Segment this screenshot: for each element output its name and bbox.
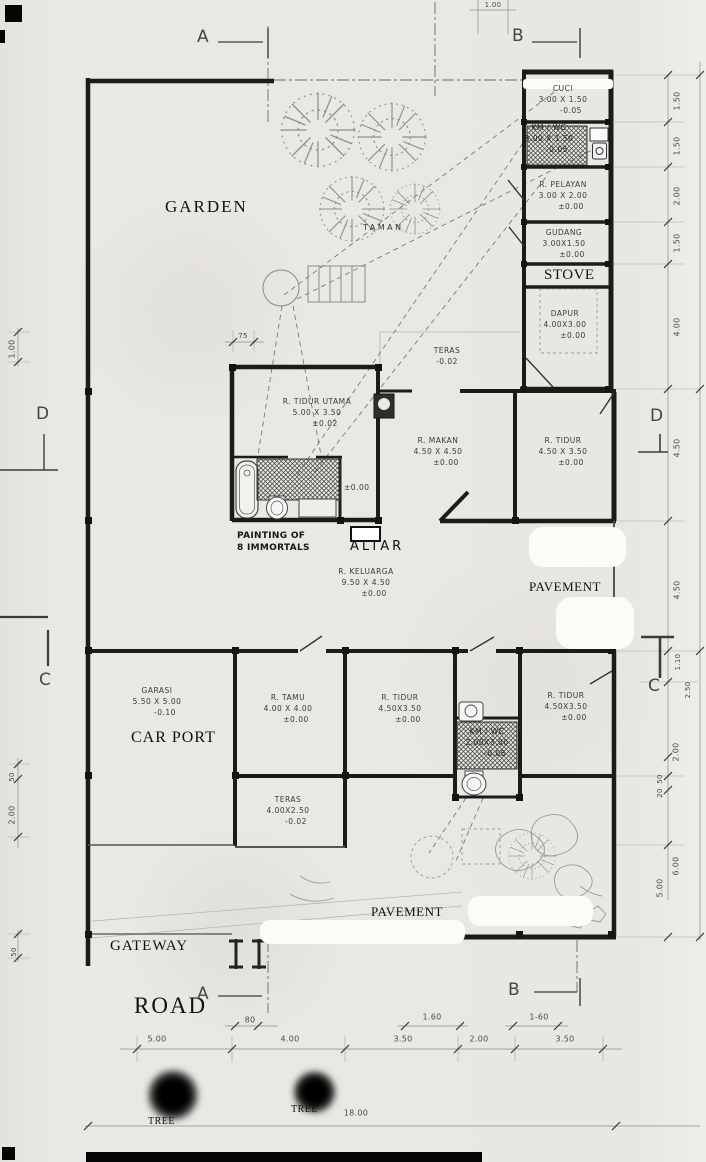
dim-label: 3.50 <box>393 1035 412 1044</box>
room-dims: 5.50 X 5.00 <box>133 697 182 708</box>
room-level: ±0.00 <box>539 458 588 469</box>
room-label-tidur-utama: R. TIDUR UTAMA 5.00 X 3.50 ±0.02 <box>283 397 352 430</box>
dim-label: 1.00 <box>485 1 502 9</box>
room-label-keluarga: R. KELUARGA 9.50 X 4.50 ±0.00 <box>338 567 393 600</box>
pavement-front-label: PAVEMENT <box>371 904 443 920</box>
whiteout-patch <box>556 597 634 649</box>
dim-label: 20 <box>656 788 664 798</box>
room-name: KM / WC <box>525 123 574 134</box>
room-label-tidur-kanan: R. TIDUR 4.50X3.50 ±0.00 <box>544 691 587 724</box>
dim-label: 50 <box>10 947 18 957</box>
room-level: -0.02 <box>266 817 309 828</box>
room-label-pelayan: R. PELAYAN 3.00 X 2.00 ±0.00 <box>539 180 588 213</box>
room-label-cuci: CUCI 3.00 X 1.50 -0.05 <box>539 84 588 117</box>
room-level: ±0.00 <box>544 713 587 724</box>
dim-label: 2.00 <box>672 742 681 761</box>
shelf <box>299 499 336 517</box>
scan-mark <box>0 30 5 43</box>
room-name: TERAS <box>434 346 461 357</box>
dim-label: 2.50 <box>684 682 692 699</box>
scan-mark <box>86 1152 482 1162</box>
bath-floor-hatch <box>257 459 340 500</box>
gate-icon <box>229 939 266 969</box>
dim-label: 75 <box>238 332 248 340</box>
dim-label: 1.60 <box>422 1013 441 1022</box>
dim-label: 1.50 <box>673 233 682 252</box>
room-name: R. MAKAN <box>414 436 463 447</box>
room-dims: 4.50X3.50 <box>378 704 421 715</box>
whiteout-patch <box>468 896 593 926</box>
room-dims: 3.00 X 1.50 <box>525 134 574 145</box>
room-level: ±0.00 <box>543 331 586 342</box>
floor-plan-canvas: CUCI 3.00 X 1.50 -0.05 KM / WC 3.00 X 1.… <box>0 0 706 1162</box>
dim-label: 1.50 <box>673 91 682 110</box>
stove-label: STOVE <box>544 267 595 284</box>
painting-line2: 8 IMMORTALS <box>237 542 310 554</box>
tree-icon <box>358 103 427 172</box>
tree-icon <box>281 93 356 168</box>
room-dims: 5.00 X 3.50 <box>283 408 352 419</box>
room-dims: 3.00X1.50 <box>542 239 585 250</box>
room-level: -0.05 <box>525 145 574 156</box>
room-label-km-bawah: KM / WC 2.00X3.00 -0.05 <box>465 727 508 760</box>
room-level: ±0.00 <box>338 589 393 600</box>
room-name: R. TIDUR <box>544 691 587 702</box>
gateway-label: GATEWAY <box>110 938 188 955</box>
room-label-tidur-tengah: R. TIDUR 4.50 X 3.50 ±0.00 <box>539 436 588 469</box>
scan-mark <box>2 1147 15 1160</box>
room-dims: 3.00 X 1.50 <box>539 95 588 106</box>
painting-line1: PAINTING OF <box>237 530 310 542</box>
room-dims: 4.00X2.50 <box>266 806 309 817</box>
room-level: -0.10 <box>133 708 182 719</box>
room-name: KM / WC <box>465 727 508 738</box>
tree-icon <box>508 832 556 880</box>
dim-label: 4.00 <box>280 1035 299 1044</box>
room-level: -0.02 <box>434 357 461 368</box>
dim-label: 5.00 <box>147 1035 166 1044</box>
whiteout-patch <box>529 527 626 567</box>
altar-label: ALTAR <box>350 539 404 554</box>
sink-icon <box>590 128 608 141</box>
taman-label: TAMAN <box>363 223 404 232</box>
dim-label: 1.50 <box>673 136 682 155</box>
dim-label: 5.00 <box>656 878 665 897</box>
grid-letter-b-top: B <box>512 26 524 46</box>
room-label-gudang: GUDANG 3.00X1.50 ±0.00 <box>542 228 585 261</box>
grid-letter-b-bottom: B <box>508 980 520 1000</box>
room-level: -0.05 <box>539 106 588 117</box>
room-dims: 4.50 X 4.50 <box>414 447 463 458</box>
room-level: ±0.00 <box>542 250 585 261</box>
room-name: TERAS <box>266 795 309 806</box>
garden-trees <box>281 93 441 243</box>
room-dims: 3.00 X 2.00 <box>539 191 588 202</box>
dim-label: 6.00 <box>672 856 681 875</box>
room-name: GUDANG <box>542 228 585 239</box>
dim-label: 50 <box>8 772 16 782</box>
dim-label: 18.00 <box>344 1109 368 1118</box>
grid-letter-d-right: D <box>650 406 663 426</box>
room-label-makan: R. MAKAN 4.50 X 4.50 ±0.00 <box>414 436 463 469</box>
room-label-teras-bawah: TERAS 4.00X2.50 -0.02 <box>266 795 309 828</box>
room-level: ±0.00 <box>378 715 421 726</box>
dim-label: 1.10 <box>674 654 682 671</box>
room-level: ±0.00 <box>414 458 463 469</box>
tree-icon <box>319 176 385 242</box>
scan-mark <box>5 5 22 22</box>
room-dims: 9.50 X 4.50 <box>338 578 393 589</box>
room-label-tamu: R. TAMU 4.00 X 4.00 ±0.00 <box>264 693 313 726</box>
dim-label: 1-60 <box>529 1013 548 1022</box>
room-dims: 4.00 X 4.00 <box>264 704 313 715</box>
room-dims: 4.50 X 3.50 <box>539 447 588 458</box>
room-name: R. TIDUR <box>378 693 421 704</box>
dim-label: 4.00 <box>673 317 682 336</box>
grid-letter-a-top: A <box>197 27 209 47</box>
dim-label: 1.00 <box>8 339 17 358</box>
grid-letter-d-left: D <box>36 404 49 424</box>
pergola-icon <box>308 266 365 302</box>
tree-left-label: TREE <box>148 1116 175 1127</box>
room-level: ±0.02 <box>283 419 352 430</box>
tree-right-label: TREE <box>291 1104 318 1115</box>
room-name: R. TIDUR UTAMA <box>283 397 352 408</box>
room-name: R. PELAYAN <box>539 180 588 191</box>
room-level: ±0.00 <box>264 715 313 726</box>
room-name: DAPUR <box>543 309 586 320</box>
dim-label: 2.00 <box>469 1035 488 1044</box>
room-label-garasi: GARASI 5.50 X 5.00 -0.10 <box>133 686 182 719</box>
room-label-km-atas: KM / WC 3.00 X 1.50 -0.05 <box>525 123 574 156</box>
whiteout-patch <box>260 920 465 944</box>
room-name: CUCI <box>539 84 588 95</box>
grid-letter-a-bottom: A <box>197 984 209 1004</box>
room-name: R. KELUARGA <box>338 567 393 578</box>
room-dims: 4.50X3.50 <box>544 702 587 713</box>
dim-label: 2.00 <box>673 186 682 205</box>
pavement-side-label: PAVEMENT <box>529 579 601 595</box>
hall-level-label: ±0.00 <box>344 483 369 492</box>
dim-label: 2.00 <box>8 805 17 824</box>
painting-label: PAINTING OF 8 IMMORTALS <box>237 530 310 554</box>
car-port-label: CAR PORT <box>131 729 216 747</box>
grid-letter-c-left: C <box>39 670 51 690</box>
room-label-teras-atas: TERAS -0.02 <box>434 346 461 368</box>
grid-letter-c-right: C <box>648 676 660 696</box>
room-name: R. TAMU <box>264 693 313 704</box>
room-name: GARASI <box>133 686 182 697</box>
dim-label: 50 <box>656 774 664 784</box>
room-label-tidur-bawah: R. TIDUR 4.50X3.50 ±0.00 <box>378 693 421 726</box>
dim-label: 80 <box>245 1016 256 1025</box>
room-label-dapur: DAPUR 4.00X3.00 ±0.00 <box>543 309 586 342</box>
dim-label: 4.50 <box>673 438 682 457</box>
room-dims: 2.00X3.00 <box>465 738 508 749</box>
room-level: ±0.00 <box>539 202 588 213</box>
room-dims: 4.00X3.00 <box>543 320 586 331</box>
dim-label: 3.50 <box>555 1035 574 1044</box>
garden-label: GARDEN <box>165 197 248 217</box>
dim-label: 4.50 <box>673 580 682 599</box>
room-level: -0.05 <box>465 749 508 760</box>
toilet-icon <box>593 143 607 159</box>
tree-icon <box>146 1068 200 1122</box>
room-name: R. TIDUR <box>539 436 588 447</box>
